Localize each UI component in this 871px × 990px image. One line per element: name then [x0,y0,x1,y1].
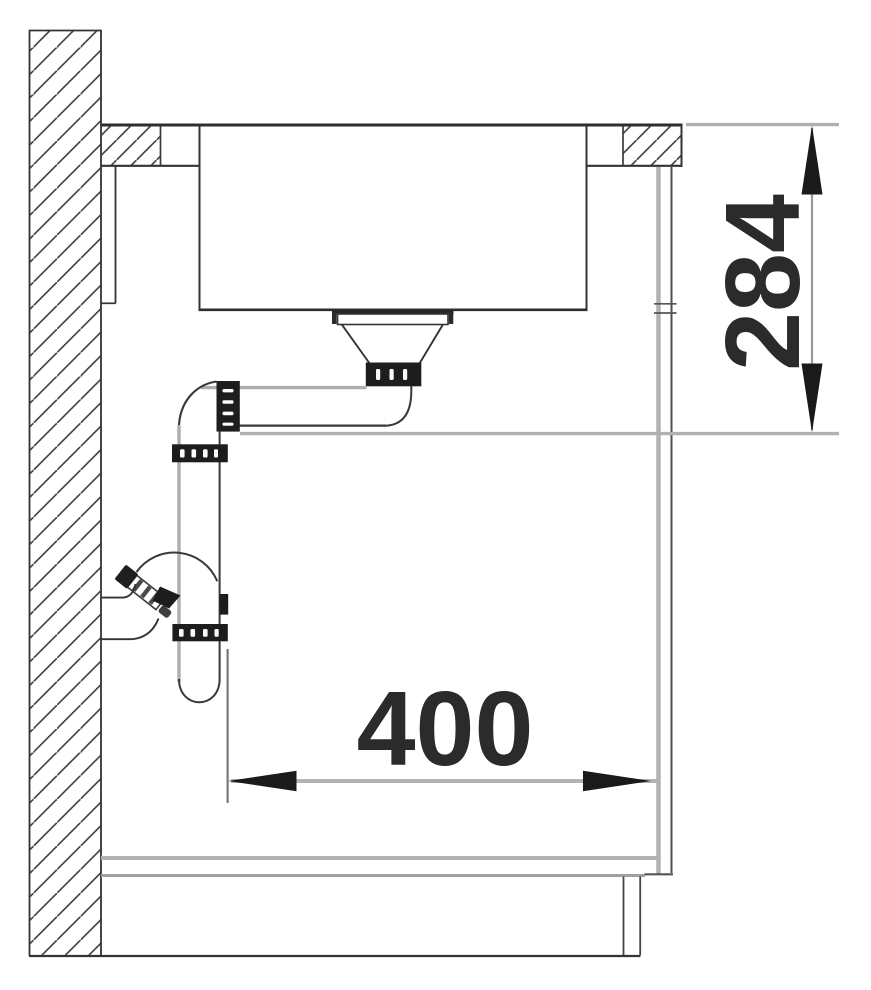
svg-text:400: 400 [357,670,534,788]
svg-text:284: 284 [704,194,822,371]
